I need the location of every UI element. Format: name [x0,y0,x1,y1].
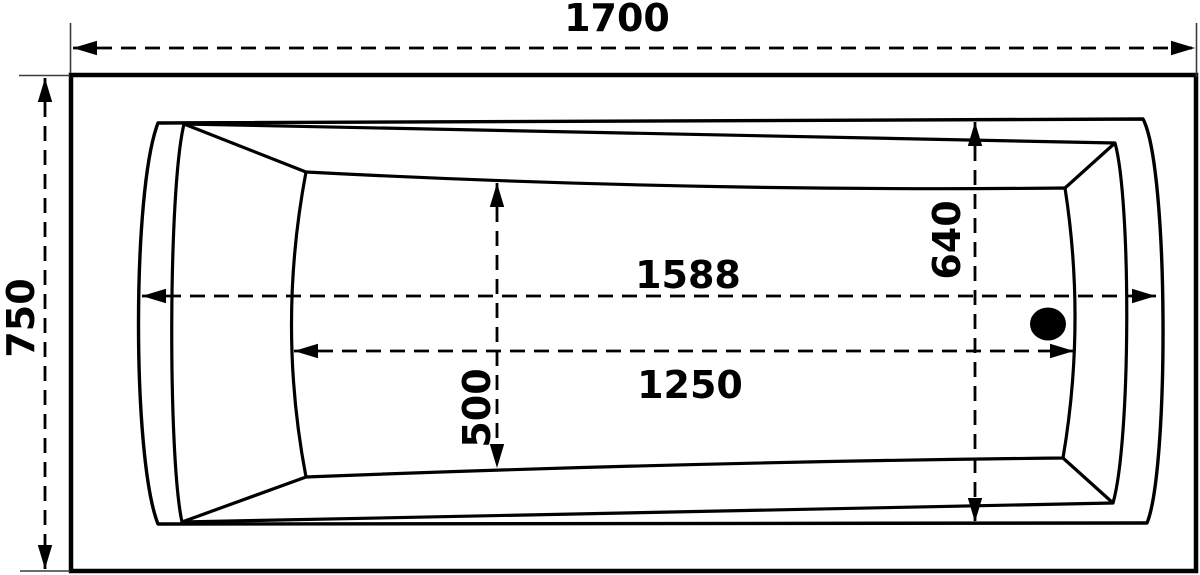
technical-drawing-canvas: 1700 750 1588 1250 500 640 [0,0,1200,575]
technical-drawing-page: 1700 750 1588 1250 500 640 [0,0,1200,575]
dim-label-overall-length: 1700 [564,0,670,40]
overall-envelope-rect [71,75,1196,571]
dim-label-overall-width: 750 [0,278,43,357]
rim-corner-edge-top-left [184,124,306,172]
dim-label-rim-span: 1588 [635,253,741,297]
dim-label-basin-width: 500 [455,368,499,447]
dim-label-basin-length: 1250 [637,363,743,407]
rim-corner-edge-top-right [1065,143,1115,188]
dim-label-rim-width: 640 [925,200,969,279]
drain-hole [1030,308,1066,341]
rim-corner-edge-bottom-right [1063,458,1113,503]
rim-corner-edge-bottom-left [182,477,306,522]
